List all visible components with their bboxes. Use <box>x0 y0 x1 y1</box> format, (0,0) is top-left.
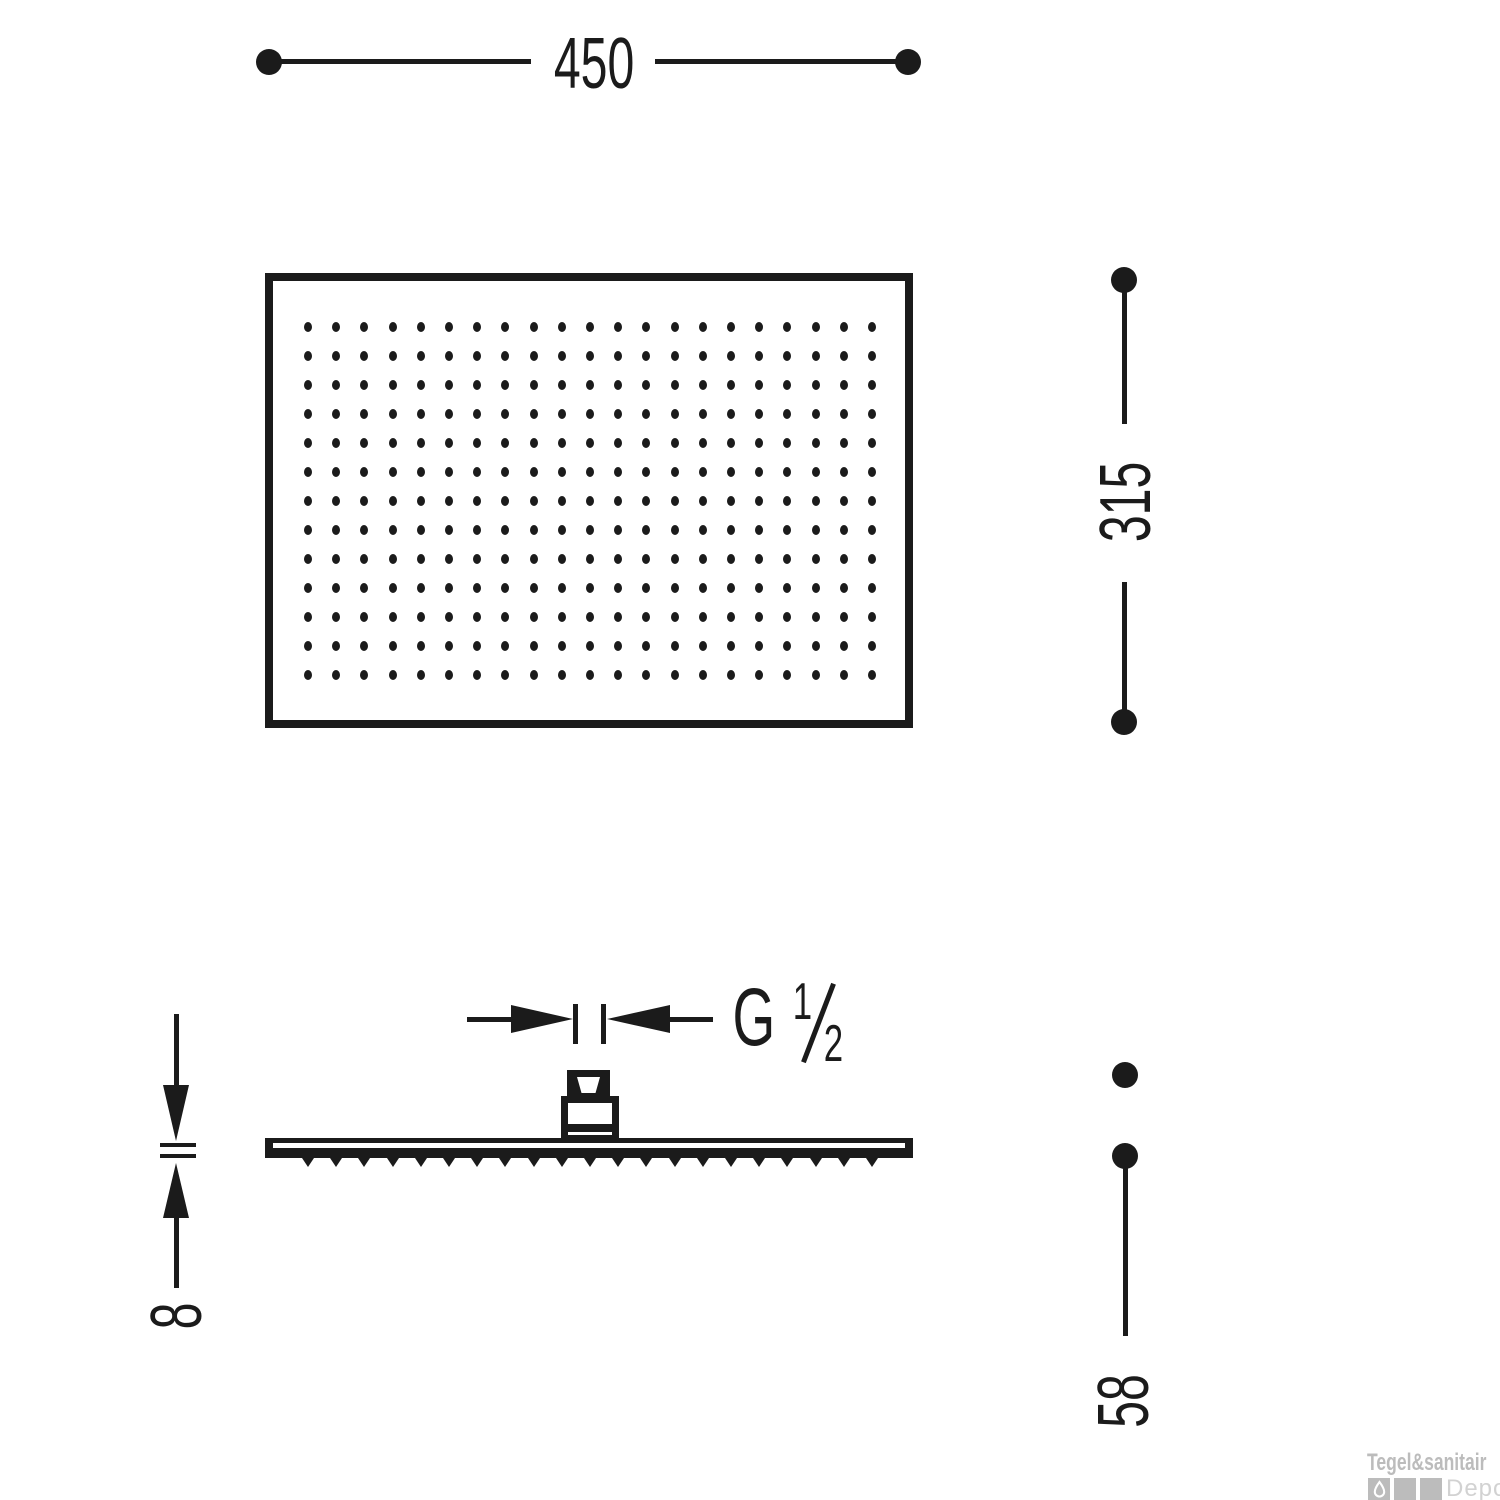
spray-hole <box>614 380 622 390</box>
dim-depth-top-endpoint-dot <box>1112 1062 1138 1088</box>
spray-hole <box>868 409 876 419</box>
connector-divider <box>561 1124 619 1132</box>
spray-hole <box>530 496 538 506</box>
spray-hole <box>812 525 820 535</box>
spray-hole <box>783 467 791 477</box>
spray-hole <box>417 438 425 448</box>
spray-hole <box>840 583 848 593</box>
dim-depth-line <box>1123 1168 1128 1336</box>
spray-hole <box>360 525 368 535</box>
watermark-square-3 <box>1420 1478 1442 1500</box>
spray-hole <box>473 612 481 622</box>
spray-hole <box>389 322 397 332</box>
spray-hole <box>332 409 340 419</box>
spray-hole <box>586 438 594 448</box>
side-plate-stripe <box>273 1143 905 1148</box>
spray-hole <box>501 409 509 419</box>
spray-hole <box>812 641 820 651</box>
spray-hole <box>417 641 425 651</box>
spray-hole <box>727 583 735 593</box>
spray-hole <box>586 496 594 506</box>
spray-hole <box>332 670 340 680</box>
spray-hole <box>840 612 848 622</box>
connector-thread-cap <box>567 1070 610 1097</box>
spray-hole <box>332 612 340 622</box>
spray-hole <box>445 351 453 361</box>
spray-hole <box>755 554 763 564</box>
spray-hole <box>304 322 312 332</box>
spray-hole <box>614 612 622 622</box>
spray-hole <box>360 641 368 651</box>
spray-hole <box>755 583 763 593</box>
spray-hole <box>360 351 368 361</box>
spray-hole <box>586 525 594 535</box>
spray-hole <box>530 525 538 535</box>
spray-hole <box>473 467 481 477</box>
spray-hole <box>360 322 368 332</box>
spray-hole <box>530 351 538 361</box>
spray-hole <box>501 380 509 390</box>
dim-thickness-arrow-down-icon <box>163 1085 189 1141</box>
spray-hole <box>642 380 650 390</box>
nozzle-bump <box>330 1158 342 1167</box>
spray-hole <box>727 409 735 419</box>
spray-hole <box>840 438 848 448</box>
spray-hole <box>558 641 566 651</box>
spray-hole <box>699 380 707 390</box>
spray-hole <box>530 612 538 622</box>
spray-hole <box>501 583 509 593</box>
spray-hole <box>530 554 538 564</box>
spray-hole <box>332 554 340 564</box>
spray-hole <box>501 525 509 535</box>
nozzle-row <box>294 1158 886 1168</box>
spray-hole <box>389 583 397 593</box>
spray-hole <box>304 525 312 535</box>
dim-width-left-endpoint-dot <box>256 49 282 75</box>
spray-hole <box>671 670 679 680</box>
spray-hole <box>614 322 622 332</box>
spray-hole <box>586 612 594 622</box>
spray-hole <box>868 380 876 390</box>
spray-hole <box>868 438 876 448</box>
spray-hole <box>614 467 622 477</box>
dim-height-line-bottom <box>1122 582 1127 710</box>
spray-hole <box>445 409 453 419</box>
spray-hole <box>417 322 425 332</box>
spray-hole <box>868 351 876 361</box>
spray-hole <box>558 351 566 361</box>
spray-hole <box>501 322 509 332</box>
dim-thickness-tick-bottom <box>160 1154 196 1158</box>
spray-hole <box>304 583 312 593</box>
spray-hole <box>727 351 735 361</box>
spray-hole <box>304 409 312 419</box>
spray-hole <box>671 496 679 506</box>
spray-hole <box>473 554 481 564</box>
spray-hole <box>642 641 650 651</box>
spray-hole <box>783 438 791 448</box>
spray-hole <box>868 612 876 622</box>
spray-hole <box>304 380 312 390</box>
spray-hole <box>642 467 650 477</box>
dim-height-line-top <box>1122 292 1127 424</box>
spray-hole <box>642 496 650 506</box>
spray-hole <box>840 496 848 506</box>
spray-hole <box>389 496 397 506</box>
spray-hole <box>671 467 679 477</box>
spray-hole <box>868 641 876 651</box>
spray-hole <box>727 467 735 477</box>
spray-hole <box>304 554 312 564</box>
dim-width-line-left <box>281 59 531 64</box>
spray-hole <box>530 583 538 593</box>
spray-hole <box>727 670 735 680</box>
spray-hole <box>783 525 791 535</box>
spray-hole <box>840 525 848 535</box>
spray-hole <box>642 554 650 564</box>
spray-hole <box>614 554 622 564</box>
spray-hole <box>332 322 340 332</box>
spray-hole <box>389 670 397 680</box>
nozzle-bump <box>810 1158 822 1167</box>
spray-hole <box>586 583 594 593</box>
spray-hole <box>389 641 397 651</box>
watermark-squares <box>1368 1478 1442 1500</box>
spray-hole <box>445 554 453 564</box>
spray-hole <box>671 380 679 390</box>
spray-hole <box>699 438 707 448</box>
spray-hole <box>671 525 679 535</box>
connector-body <box>561 1096 619 1142</box>
spray-hole <box>812 467 820 477</box>
spray-hole <box>727 322 735 332</box>
spray-hole <box>530 409 538 419</box>
nozzle-bump <box>499 1158 511 1167</box>
nozzle-bump <box>302 1158 314 1167</box>
spray-hole <box>473 438 481 448</box>
spray-hole <box>614 351 622 361</box>
spray-hole <box>840 554 848 564</box>
spray-hole <box>360 380 368 390</box>
spray-hole <box>699 641 707 651</box>
spray-hole <box>360 670 368 680</box>
spray-hole <box>473 351 481 361</box>
spray-hole <box>445 612 453 622</box>
spray-hole <box>501 351 509 361</box>
spray-hole <box>389 554 397 564</box>
spray-hole <box>389 438 397 448</box>
spray-hole <box>755 670 763 680</box>
spray-hole <box>783 496 791 506</box>
spray-hole <box>727 554 735 564</box>
spray-hole <box>727 525 735 535</box>
spray-hole <box>445 322 453 332</box>
dim-width-right-endpoint-dot <box>895 49 921 75</box>
spray-hole <box>558 467 566 477</box>
spray-hole <box>671 554 679 564</box>
spray-hole <box>389 525 397 535</box>
spray-hole <box>417 467 425 477</box>
spray-hole <box>473 409 481 419</box>
nozzle-bump <box>697 1158 709 1167</box>
spray-hole <box>501 554 509 564</box>
spray-hole <box>586 554 594 564</box>
spray-hole <box>840 641 848 651</box>
spray-hole <box>558 583 566 593</box>
spray-hole <box>671 641 679 651</box>
watermark-square-2 <box>1394 1478 1416 1500</box>
spray-hole <box>642 670 650 680</box>
spray-hole <box>783 583 791 593</box>
spray-hole <box>840 670 848 680</box>
spray-hole <box>699 351 707 361</box>
spray-hole <box>671 583 679 593</box>
nozzle-bump <box>866 1158 878 1167</box>
spray-hole <box>812 612 820 622</box>
spray-hole <box>417 496 425 506</box>
spray-hole <box>501 612 509 622</box>
spray-hole <box>586 467 594 477</box>
spray-hole <box>304 612 312 622</box>
spray-hole <box>332 351 340 361</box>
spray-hole <box>642 612 650 622</box>
spray-hole <box>501 670 509 680</box>
spray-hole <box>530 322 538 332</box>
spray-hole <box>783 322 791 332</box>
spray-hole <box>473 496 481 506</box>
spray-hole <box>304 496 312 506</box>
nozzle-bump <box>387 1158 399 1167</box>
spray-hole <box>699 554 707 564</box>
spray-hole <box>332 525 340 535</box>
spray-hole <box>642 525 650 535</box>
spray-hole <box>642 322 650 332</box>
spray-hole <box>699 496 707 506</box>
dim-thickness-arrow-up-icon <box>163 1163 189 1218</box>
spray-hole <box>614 409 622 419</box>
spray-hole <box>445 380 453 390</box>
spray-hole <box>445 525 453 535</box>
spray-hole <box>445 496 453 506</box>
spray-hole <box>417 670 425 680</box>
nozzle-bump <box>781 1158 793 1167</box>
nozzle-bump <box>612 1158 624 1167</box>
spray-hole <box>868 554 876 564</box>
nozzle-bump <box>584 1158 596 1167</box>
spray-hole <box>840 380 848 390</box>
dim-thickness-line-bottom <box>174 1218 179 1288</box>
spray-hole <box>755 351 763 361</box>
nozzle-bump <box>415 1158 427 1167</box>
spray-hole <box>473 641 481 651</box>
spray-hole <box>727 641 735 651</box>
spray-hole <box>755 496 763 506</box>
spray-hole <box>332 467 340 477</box>
spray-hole <box>699 525 707 535</box>
spray-hole <box>332 438 340 448</box>
dim-thickness-line-top <box>174 1014 179 1086</box>
spray-hole <box>614 496 622 506</box>
spray-hole <box>389 467 397 477</box>
spray-hole <box>755 467 763 477</box>
spray-hole <box>417 525 425 535</box>
spray-hole <box>783 351 791 361</box>
spray-hole <box>727 438 735 448</box>
technical-drawing-canvas: 450 315 G 1 2 8 58 <box>0 0 1500 1500</box>
spray-hole <box>840 467 848 477</box>
spray-hole <box>783 670 791 680</box>
watermark-brand: Tegel&sanitair <box>1367 1449 1486 1477</box>
water-droplet-icon <box>1372 1480 1387 1498</box>
spray-hole <box>473 525 481 535</box>
spray-hole <box>332 496 340 506</box>
spray-hole <box>445 670 453 680</box>
spray-hole <box>614 670 622 680</box>
nozzle-bump <box>556 1158 568 1167</box>
spray-hole <box>755 409 763 419</box>
spray-hole <box>586 670 594 680</box>
spray-hole <box>783 641 791 651</box>
spray-hole <box>868 467 876 477</box>
spray-hole <box>699 409 707 419</box>
spray-hole <box>783 380 791 390</box>
nozzle-bump <box>640 1158 652 1167</box>
spray-hole <box>812 322 820 332</box>
spray-hole <box>558 670 566 680</box>
spray-hole <box>586 380 594 390</box>
spray-hole <box>699 612 707 622</box>
watermark-sub-brand: Depot <box>1446 1475 1500 1500</box>
spray-hole <box>812 409 820 419</box>
spray-hole <box>671 409 679 419</box>
spray-hole <box>501 641 509 651</box>
spray-hole <box>558 322 566 332</box>
spray-hole <box>868 525 876 535</box>
spray-hole-grid <box>294 312 886 690</box>
spray-hole <box>417 380 425 390</box>
spray-hole <box>727 496 735 506</box>
nozzle-bump <box>528 1158 540 1167</box>
spray-hole <box>501 467 509 477</box>
spray-hole <box>812 496 820 506</box>
connector-thread-cap-inner <box>576 1077 601 1093</box>
spray-hole <box>755 322 763 332</box>
dim-thickness-tick-top <box>160 1143 196 1147</box>
shower-head-side-view-plate <box>265 1138 913 1158</box>
spray-hole <box>699 583 707 593</box>
spray-hole <box>586 641 594 651</box>
spray-hole <box>558 554 566 564</box>
spray-hole <box>360 554 368 564</box>
spray-hole <box>304 351 312 361</box>
thread-dim-line-left <box>467 1017 513 1022</box>
spray-hole <box>586 322 594 332</box>
spray-hole <box>417 351 425 361</box>
spray-hole <box>530 641 538 651</box>
spray-hole <box>812 554 820 564</box>
spray-hole <box>360 496 368 506</box>
spray-hole <box>840 322 848 332</box>
thread-dim-line-right <box>668 1017 713 1022</box>
spray-hole <box>642 438 650 448</box>
spray-hole <box>304 467 312 477</box>
spray-hole <box>614 438 622 448</box>
spray-hole <box>360 438 368 448</box>
spray-hole <box>783 409 791 419</box>
nozzle-bump <box>358 1158 370 1167</box>
spray-hole <box>558 525 566 535</box>
spray-hole <box>473 380 481 390</box>
spray-hole <box>783 554 791 564</box>
spray-hole <box>727 380 735 390</box>
spray-hole <box>671 322 679 332</box>
spray-hole <box>417 554 425 564</box>
spray-hole <box>783 612 791 622</box>
spray-hole <box>417 612 425 622</box>
spray-hole <box>868 496 876 506</box>
thread-extension-tick-left <box>573 1004 578 1044</box>
spray-hole <box>332 641 340 651</box>
spray-hole <box>501 438 509 448</box>
spray-hole <box>530 670 538 680</box>
spray-hole <box>755 641 763 651</box>
spray-hole <box>671 438 679 448</box>
spray-hole <box>614 641 622 651</box>
spray-hole <box>586 351 594 361</box>
spray-hole <box>558 496 566 506</box>
nozzle-bump <box>753 1158 765 1167</box>
spray-hole <box>530 438 538 448</box>
spray-hole <box>417 583 425 593</box>
spray-hole <box>642 409 650 419</box>
nozzle-bump <box>838 1158 850 1167</box>
spray-hole <box>755 380 763 390</box>
nozzle-bump <box>669 1158 681 1167</box>
spray-hole <box>755 438 763 448</box>
spray-hole <box>473 583 481 593</box>
spray-hole <box>417 409 425 419</box>
spray-hole <box>530 380 538 390</box>
nozzle-bump <box>443 1158 455 1167</box>
spray-hole <box>727 612 735 622</box>
spray-hole <box>304 438 312 448</box>
spray-hole <box>445 438 453 448</box>
spray-hole <box>699 322 707 332</box>
spray-hole <box>473 670 481 680</box>
spray-hole <box>671 351 679 361</box>
watermark-droplet-square <box>1368 1478 1390 1500</box>
spray-hole <box>445 467 453 477</box>
dim-width-line-right <box>655 59 896 64</box>
nozzle-bump <box>471 1158 483 1167</box>
spray-hole <box>812 351 820 361</box>
spray-hole <box>445 641 453 651</box>
dim-height-bottom-endpoint-dot <box>1111 709 1137 735</box>
spray-hole <box>332 583 340 593</box>
spray-hole <box>558 409 566 419</box>
spray-hole <box>558 380 566 390</box>
spray-hole <box>389 612 397 622</box>
spray-hole <box>360 612 368 622</box>
spray-hole <box>501 496 509 506</box>
spray-hole <box>699 670 707 680</box>
spray-hole <box>304 641 312 651</box>
spray-hole <box>699 467 707 477</box>
spray-hole <box>840 409 848 419</box>
spray-hole <box>473 322 481 332</box>
spray-hole <box>812 670 820 680</box>
